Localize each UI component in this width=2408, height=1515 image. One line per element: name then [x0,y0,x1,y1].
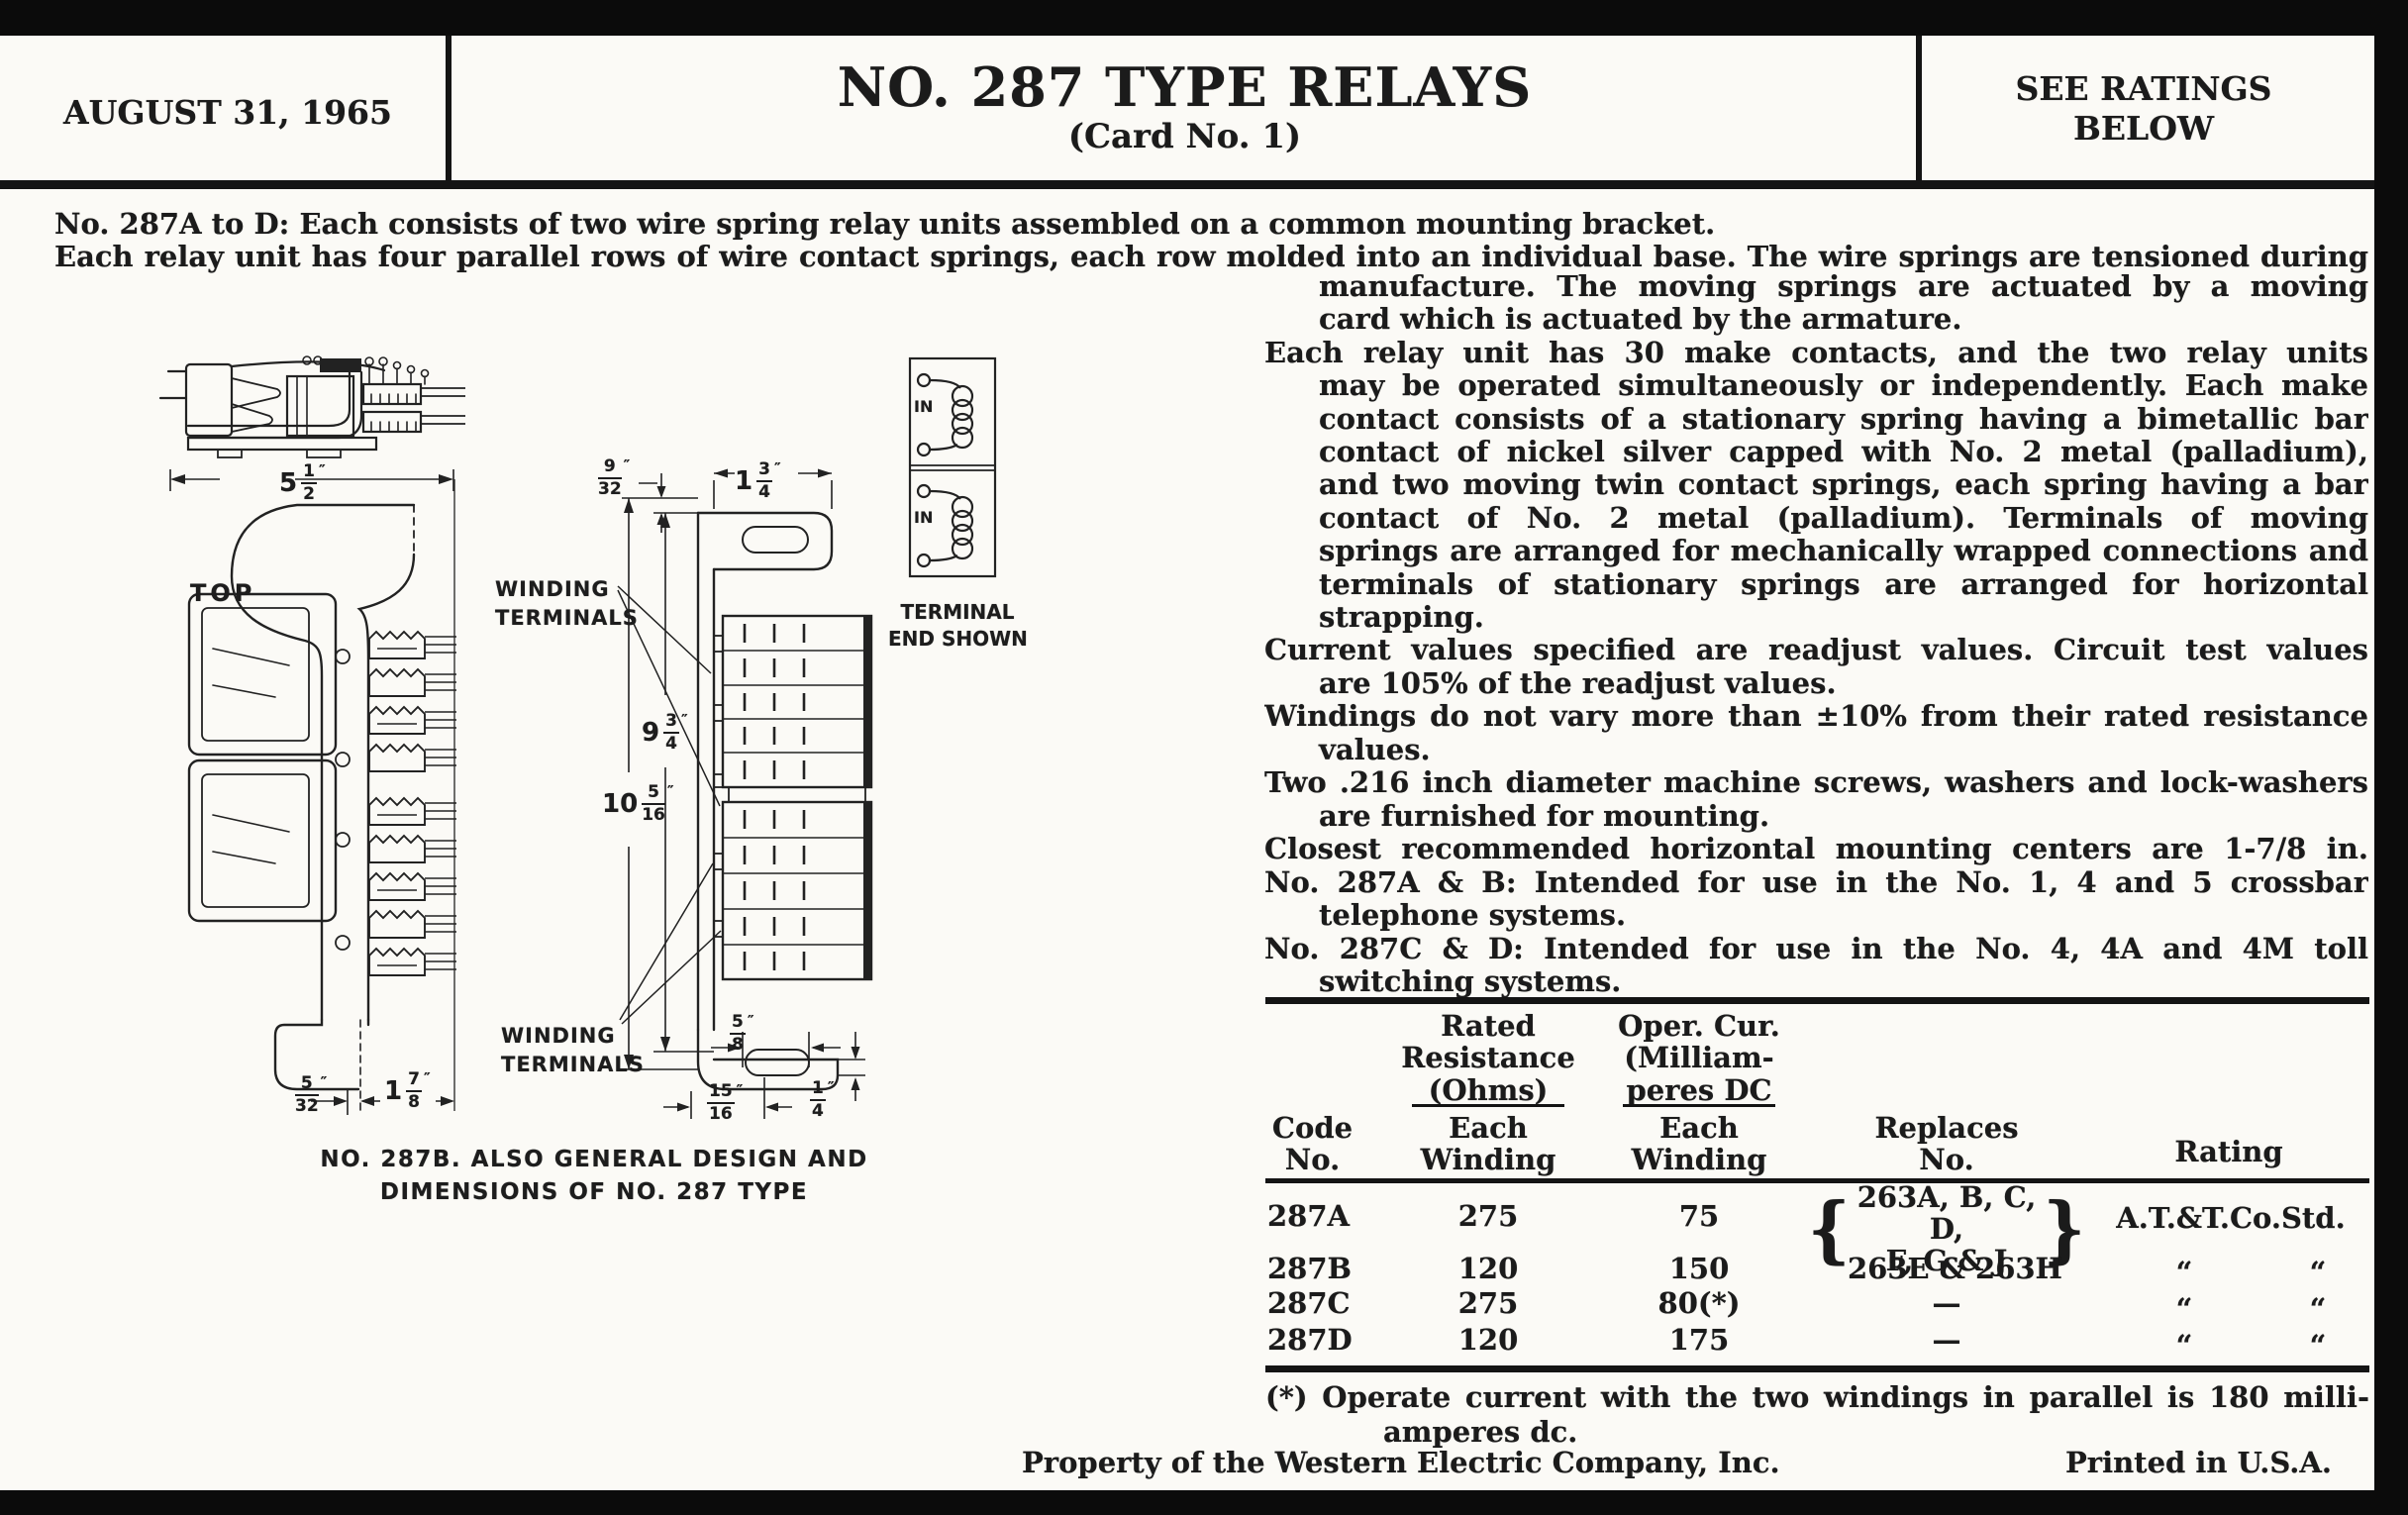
row-287B-current: 150 [1600,1253,1798,1285]
body-line: values. [1319,734,2368,766]
dim-bracket-width: 1 34 ″ [735,461,781,501]
dim-whole: 9 [642,720,659,746]
doc-subtitle: (Card No. 1) [451,117,1919,156]
block-edge-upper [863,616,872,787]
col-header-code-l1: Code [1265,1112,1359,1145]
row-287C-replaces: — [1848,1287,2046,1320]
footnote-line-2: amperes dc. [1383,1416,1577,1449]
dim-denominator: 32 [598,479,622,498]
coil-schematic-drawing: IN IN [905,353,1000,586]
body-line: manufacture. The moving springs are actu… [1319,270,2368,304]
inch-mark: ″ [321,1075,328,1090]
inch-mark: ″ [624,458,631,473]
dim-denominator: 4 [756,482,772,501]
row-287C-code: 287C [1267,1287,1376,1320]
doc-title: NO. 287 TYPE RELAYS [451,55,1919,119]
body-line: Two .216 inch diameter machine screws, w… [1264,766,2368,800]
body-line: are 105% of the readjust values. [1319,667,2368,700]
header-divider-right [1916,36,1922,180]
body-line: card which is actuated by the armature. [1319,303,2368,336]
dim-denominator: 32 [295,1096,319,1115]
dim-whole: 1 [735,468,752,494]
col-header-replaces-l2: No. [1848,1144,2046,1176]
body-line: No. 287A & B: Intended for use in the No… [1264,866,2368,900]
footnote-line-1: (*) Operate current with the two winding… [1265,1381,2369,1415]
body-line: and two moving twin contact springs, eac… [1319,468,2368,502]
dim-whole: 5 [279,470,297,496]
coil-outline [910,358,995,576]
terminal-end-l2: END SHOWN [888,626,1027,653]
dim-slot-center: 1516 ″ [707,1083,743,1123]
inch-mark: ″ [667,784,674,799]
row-287A-resistance: 275 [1389,1200,1587,1233]
row-287A-current: 75 [1600,1200,1798,1233]
col-header-replaces-l1: Replaces [1848,1112,2046,1145]
body-line: contact consists of a stationary spring … [1319,403,2368,437]
inch-mark: ″ [748,1014,754,1029]
body-line: are furnished for mounting. [1319,800,2368,833]
end-view-outline [698,513,871,1089]
dim-whole: 10 [602,791,638,817]
dim-denominator: 16 [707,1104,735,1123]
ratings-note-line1: SEE RATINGS [1921,69,2366,109]
winding-terminals-upper-l2: TERMINALS [495,604,639,633]
body-line: telephone systems. [1319,899,2368,932]
dim-numerator: 5 [642,784,665,805]
row-287D-current: 175 [1600,1324,1798,1357]
row-287B-resistance: 120 [1389,1253,1587,1285]
body-line: contact of No. 2 metal (palladium). Term… [1319,502,2368,536]
row-287D-resistance: 120 [1389,1324,1587,1357]
terminal-end-label: TERMINAL END SHOWN [888,599,1027,653]
dim-terminal-span: 9 34 ″ [642,713,688,753]
dim-numerator: 5 [730,1014,746,1035]
terminal-end-l1: TERMINAL [888,599,1027,626]
scanned-relay-card: { "colors": {"paper": "#fbfaf6", "ink": … [0,0,2408,1515]
ratings-table: Rated Resistance (Ohms) Each Winding Ope… [1265,997,2369,1378]
body-line: terminals of stationary springs are arra… [1319,568,2368,602]
body-line: Each relay unit has 30 make contacts, an… [1264,337,2368,370]
winding-terminals-upper-l1: WINDING [495,575,639,604]
side-view-lines [160,356,465,457]
dim-numerator: 3 [663,713,679,734]
body-line: contact of nickel silver capped with No.… [1319,436,2368,469]
body-line: switching systems. [1319,965,2368,998]
col-header-code-l2: No. [1265,1144,1359,1176]
inch-mark: ″ [681,713,688,728]
body-line: Windings do not vary more than ±10% from… [1264,700,2368,734]
dim-depth: 1 78 ″ [384,1071,431,1111]
footer-printed-note: Printed in U.S.A. [2065,1446,2332,1479]
col-header-current-l1: Oper. Cur. [1600,1010,1798,1043]
body-line: No. 287C & D: Intended for use in the No… [1264,933,2368,966]
footer-property-note: Property of the Western Electric Company… [1022,1446,1780,1479]
card-page: AUGUST 31, 1965 NO. 287 TYPE RELAYS (Car… [0,36,2374,1490]
current-underline [1623,1104,1775,1107]
body-line: springs are arranged for mechanically wr… [1319,535,2368,568]
body-line: strapping. [1319,601,2368,634]
contact-spring-combs [369,632,456,975]
dim-denominator: 16 [642,805,665,824]
row-287D-rating-ditto-2: “ [2288,1330,2348,1363]
inch-mark: ″ [774,461,781,476]
dim-whole: 1 [384,1078,402,1104]
block-edge-lower [863,802,872,979]
row-287C-current: 80(*) [1600,1287,1798,1320]
dim-denominator: 8 [406,1092,422,1111]
header-divider-left [446,36,451,180]
col-header-resistance-each: Each [1389,1112,1587,1145]
row-287A-replaces-l1: 263A, B, C, D, [1850,1181,2043,1245]
table-rule-top [1265,997,2369,1004]
intro-line-1: No. 287A to D: Each consists of two wire… [54,208,1715,241]
winding-terminals-label-lower: WINDING TERMINALS [501,1022,645,1079]
dim-overall-height: 10 516 ″ [602,784,674,824]
col-header-current-each: Each [1600,1112,1798,1145]
inch-mark: ″ [828,1080,835,1095]
row-287B-code: 287B [1267,1253,1376,1285]
dim-numerator: 1 [810,1080,826,1101]
col-header-resistance-winding: Winding [1389,1144,1587,1176]
col-header-current-l3: peres DC [1600,1074,1798,1107]
inch-mark: ″ [737,1083,744,1098]
row-287C-resistance: 275 [1389,1287,1587,1320]
col-header-current-winding: Winding [1600,1144,1798,1176]
row-287B-rating-ditto-2: “ [2288,1257,2348,1289]
dim-overall-width: 5 12 ″ [279,463,326,503]
drawing-caption-l1: NO. 287B. ALSO GENERAL DESIGN AND [317,1144,871,1176]
row-287D-replaces: — [1848,1324,2046,1357]
dim-numerator: 9 [598,458,622,479]
row-287B-replaces: 263E & 263H [1848,1253,2046,1285]
resistance-underline [1412,1104,1564,1107]
dim-numerator: 3 [756,461,772,482]
ratings-note-line2: BELOW [1921,109,2366,149]
row-287D-code: 287D [1267,1324,1376,1357]
dim-slot-width: 58 ″ [730,1014,754,1054]
inch-mark: ″ [319,463,326,478]
winding-terminals-lower-l1: WINDING [501,1022,645,1051]
col-header-current-l2: (Milliam- [1600,1042,1798,1074]
row-287C-rating-ditto-1: “ [2155,1293,2214,1326]
row-287D-rating-ditto-1: “ [2155,1330,2214,1363]
dim-base-offset: 532 ″ [295,1075,327,1115]
col-header-resistance-l1: Rated [1389,1010,1587,1043]
dim-numerator: 5 [295,1075,319,1096]
body-line: may be operated simultaneously or indepe… [1319,369,2368,403]
top-view-label: TOP [190,579,255,607]
row-287A-rating: A.T.&T.Co.Std. [2092,1202,2369,1235]
side-view-cap [320,358,361,372]
dim-denominator: 8 [730,1035,746,1054]
brace-open: { [1808,1186,1850,1271]
doc-date: AUGUST 31, 1965 [20,93,436,132]
inch-mark: ″ [424,1071,431,1086]
dim-denominator: 2 [301,484,317,503]
header-rule [0,180,2374,189]
terminal-block-slots [745,624,804,970]
table-rule-bottom [1265,1365,2369,1372]
dim-bracket-offset: 932 ″ [598,458,630,498]
dim-numerator: 1 [301,463,317,484]
drawing-caption: NO. 287B. ALSO GENERAL DESIGN AND DIMENS… [317,1144,871,1209]
dim-denominator: 4 [663,734,679,753]
top-view-drawing [99,465,515,1119]
coil-in-label-lower: IN [914,508,933,527]
row-287B-rating-ditto-1: “ [2155,1257,2214,1289]
drawing-caption-l2: DIMENSIONS OF NO. 287 TYPE [317,1176,871,1209]
col-header-resistance-l3: (Ohms) [1389,1074,1587,1107]
dim-denominator: 4 [810,1101,826,1120]
dim-numerator: 15 [707,1083,735,1104]
winding-terminals-label-upper: WINDING TERMINALS [495,575,639,633]
dim-numerator: 7 [406,1071,422,1092]
col-header-rating: Rating [2130,1136,2328,1168]
coil-in-label-upper: IN [914,397,933,416]
body-line: Current values specified are readjust va… [1264,634,2368,667]
row-287A-code: 287A [1267,1200,1376,1233]
dim-foot-offset: 14 ″ [810,1080,835,1120]
row-287C-rating-ditto-2: “ [2288,1293,2348,1326]
col-header-resistance-l2: Resistance [1389,1042,1587,1074]
body-line: Closest recommended horizontal mounting … [1264,833,2368,866]
intro-line-2: Each relay unit has four parallel rows o… [54,241,2368,274]
winding-terminals-lower-l2: TERMINALS [501,1051,645,1079]
